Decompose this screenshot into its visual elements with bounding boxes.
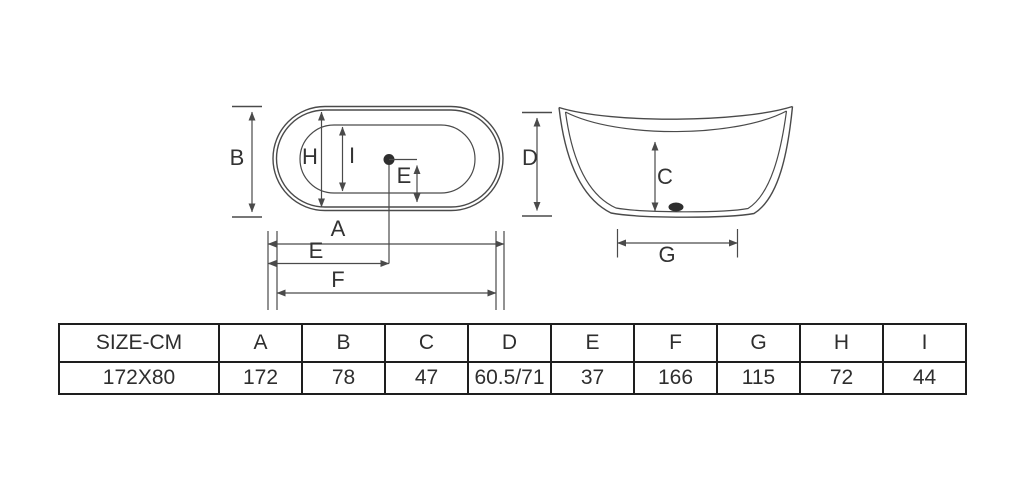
dim-label-i: I [349, 143, 355, 168]
table-header-b: B [302, 324, 385, 362]
table-cell-e: 37 [551, 362, 634, 394]
bathtub-spec-sheet: B H I E A E F [0, 0, 1024, 500]
table-cell-a: 172 [219, 362, 302, 394]
dim-label-a: A [331, 216, 346, 241]
dim-label-c: C [657, 164, 673, 189]
side-view-inner-wall [566, 111, 787, 212]
table-header-c: C [385, 324, 468, 362]
size-table: SIZE-CM A B C D E F G H I 172X80 172 78 … [58, 323, 967, 395]
table-header-h: H [800, 324, 883, 362]
table-cell-g: 115 [717, 362, 800, 394]
top-view: B H I E A E F [230, 107, 504, 311]
dim-label-g: G [658, 242, 675, 267]
dim-label-e: E [309, 238, 324, 263]
table-header-row: SIZE-CM A B C D E F G H I [59, 324, 966, 362]
table-cell-i: 44 [883, 362, 966, 394]
table-header-size-cm: SIZE-CM [59, 324, 219, 362]
dim-label-d: D [522, 145, 538, 170]
table-cell-b: 78 [302, 362, 385, 394]
dim-label-f: F [331, 267, 344, 292]
table-cell-d: 60.5/71 [468, 362, 551, 394]
table-header-g: G [717, 324, 800, 362]
side-view-rim-upper-curve [559, 107, 793, 120]
table-header-e: E [551, 324, 634, 362]
side-view: D C G [522, 107, 793, 268]
dim-label-e-drain: E [397, 163, 412, 188]
bathtub-dimension-diagram: B H I E A E F [0, 0, 1024, 318]
table-header-i: I [883, 324, 966, 362]
table-value-row: 172X80 172 78 47 60.5/71 37 166 115 72 4… [59, 362, 966, 394]
table-cell-size: 172X80 [59, 362, 219, 394]
table-header-a: A [219, 324, 302, 362]
side-drain-dot [669, 203, 684, 212]
dim-label-b: B [230, 145, 245, 170]
table-cell-h: 72 [800, 362, 883, 394]
table-header-f: F [634, 324, 717, 362]
length-extension-lines [268, 231, 504, 310]
table-header-d: D [468, 324, 551, 362]
table-cell-f: 166 [634, 362, 717, 394]
table-cell-c: 47 [385, 362, 468, 394]
dim-label-h: H [302, 144, 318, 169]
